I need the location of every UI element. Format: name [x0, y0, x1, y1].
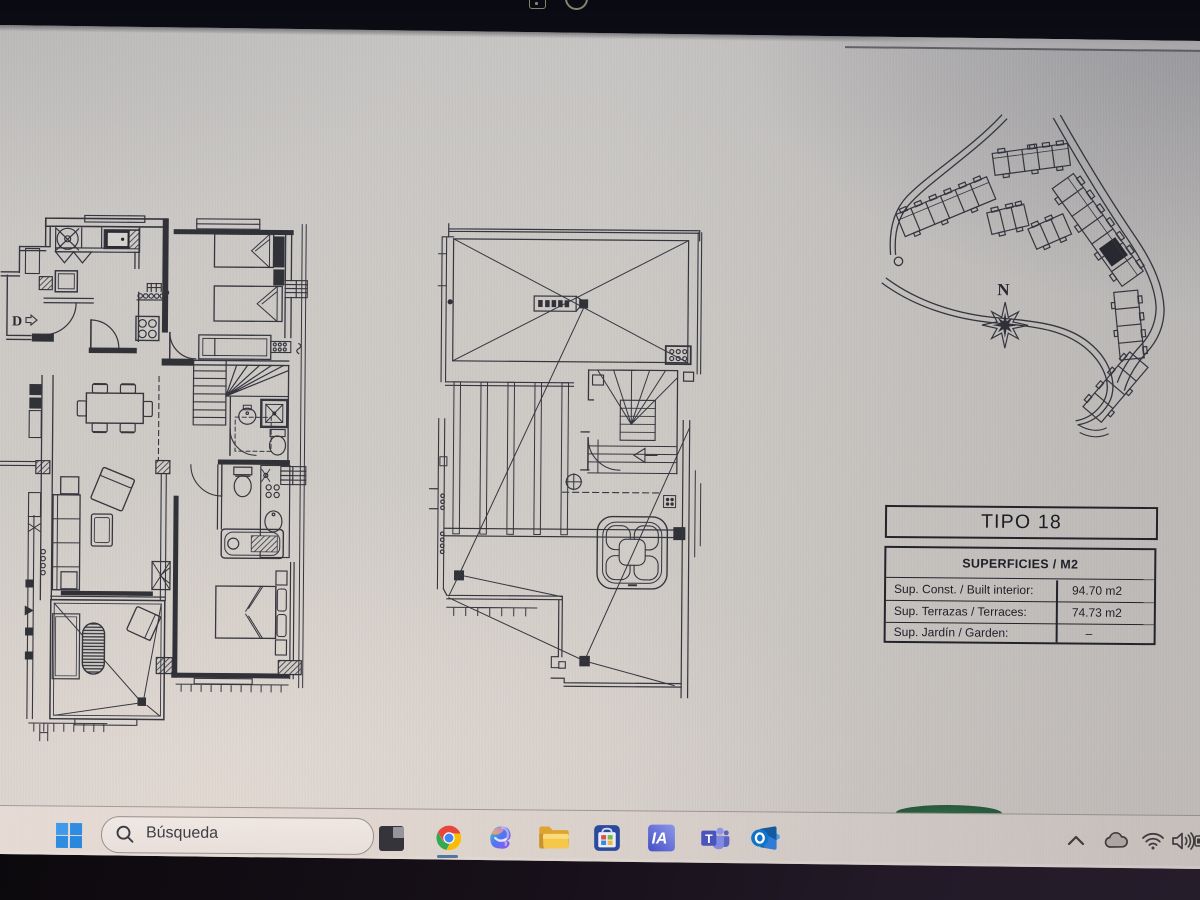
svg-text:N: N: [997, 280, 1010, 299]
svg-text:T: T: [705, 832, 713, 846]
svg-text:D: D: [12, 314, 22, 329]
svg-text:IA: IA: [652, 831, 668, 848]
